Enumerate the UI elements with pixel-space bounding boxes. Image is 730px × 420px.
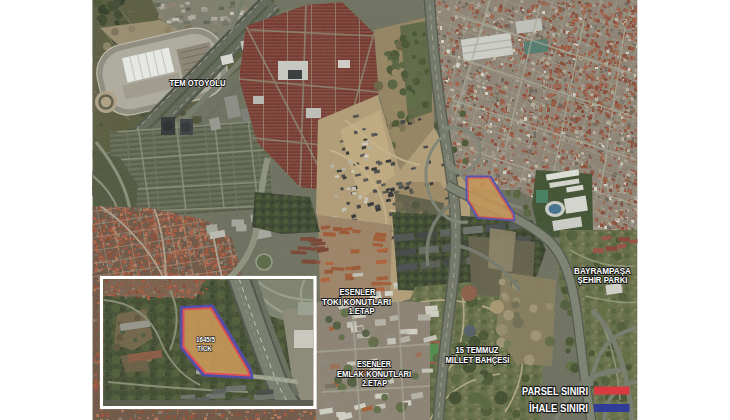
svg-text:ESENLER: ESENLER	[357, 359, 391, 369]
svg-text:1.ETAP: 1.ETAP	[349, 306, 375, 316]
svg-text:ESENLER: ESENLER	[340, 287, 376, 297]
svg-text:2.ETAP: 2.ETAP	[362, 378, 387, 388]
svg-text:15 TEMMUZ: 15 TEMMUZ	[456, 345, 499, 355]
svg-text:TEM OTOYOLU: TEM OTOYOLU	[170, 77, 226, 88]
svg-text:ŞEHİR PARKI: ŞEHİR PARKI	[578, 275, 628, 285]
svg-text:EMLAK KONUTLARI: EMLAK KONUTLARI	[337, 369, 411, 379]
svg-text:İHALE SINIRI: İHALE SINIRI	[529, 402, 588, 414]
svg-text:MİLLET BAHÇESİ: MİLLET BAHÇESİ	[446, 355, 510, 365]
svg-text:PARSEL SINIRI: PARSEL SINIRI	[522, 385, 588, 397]
